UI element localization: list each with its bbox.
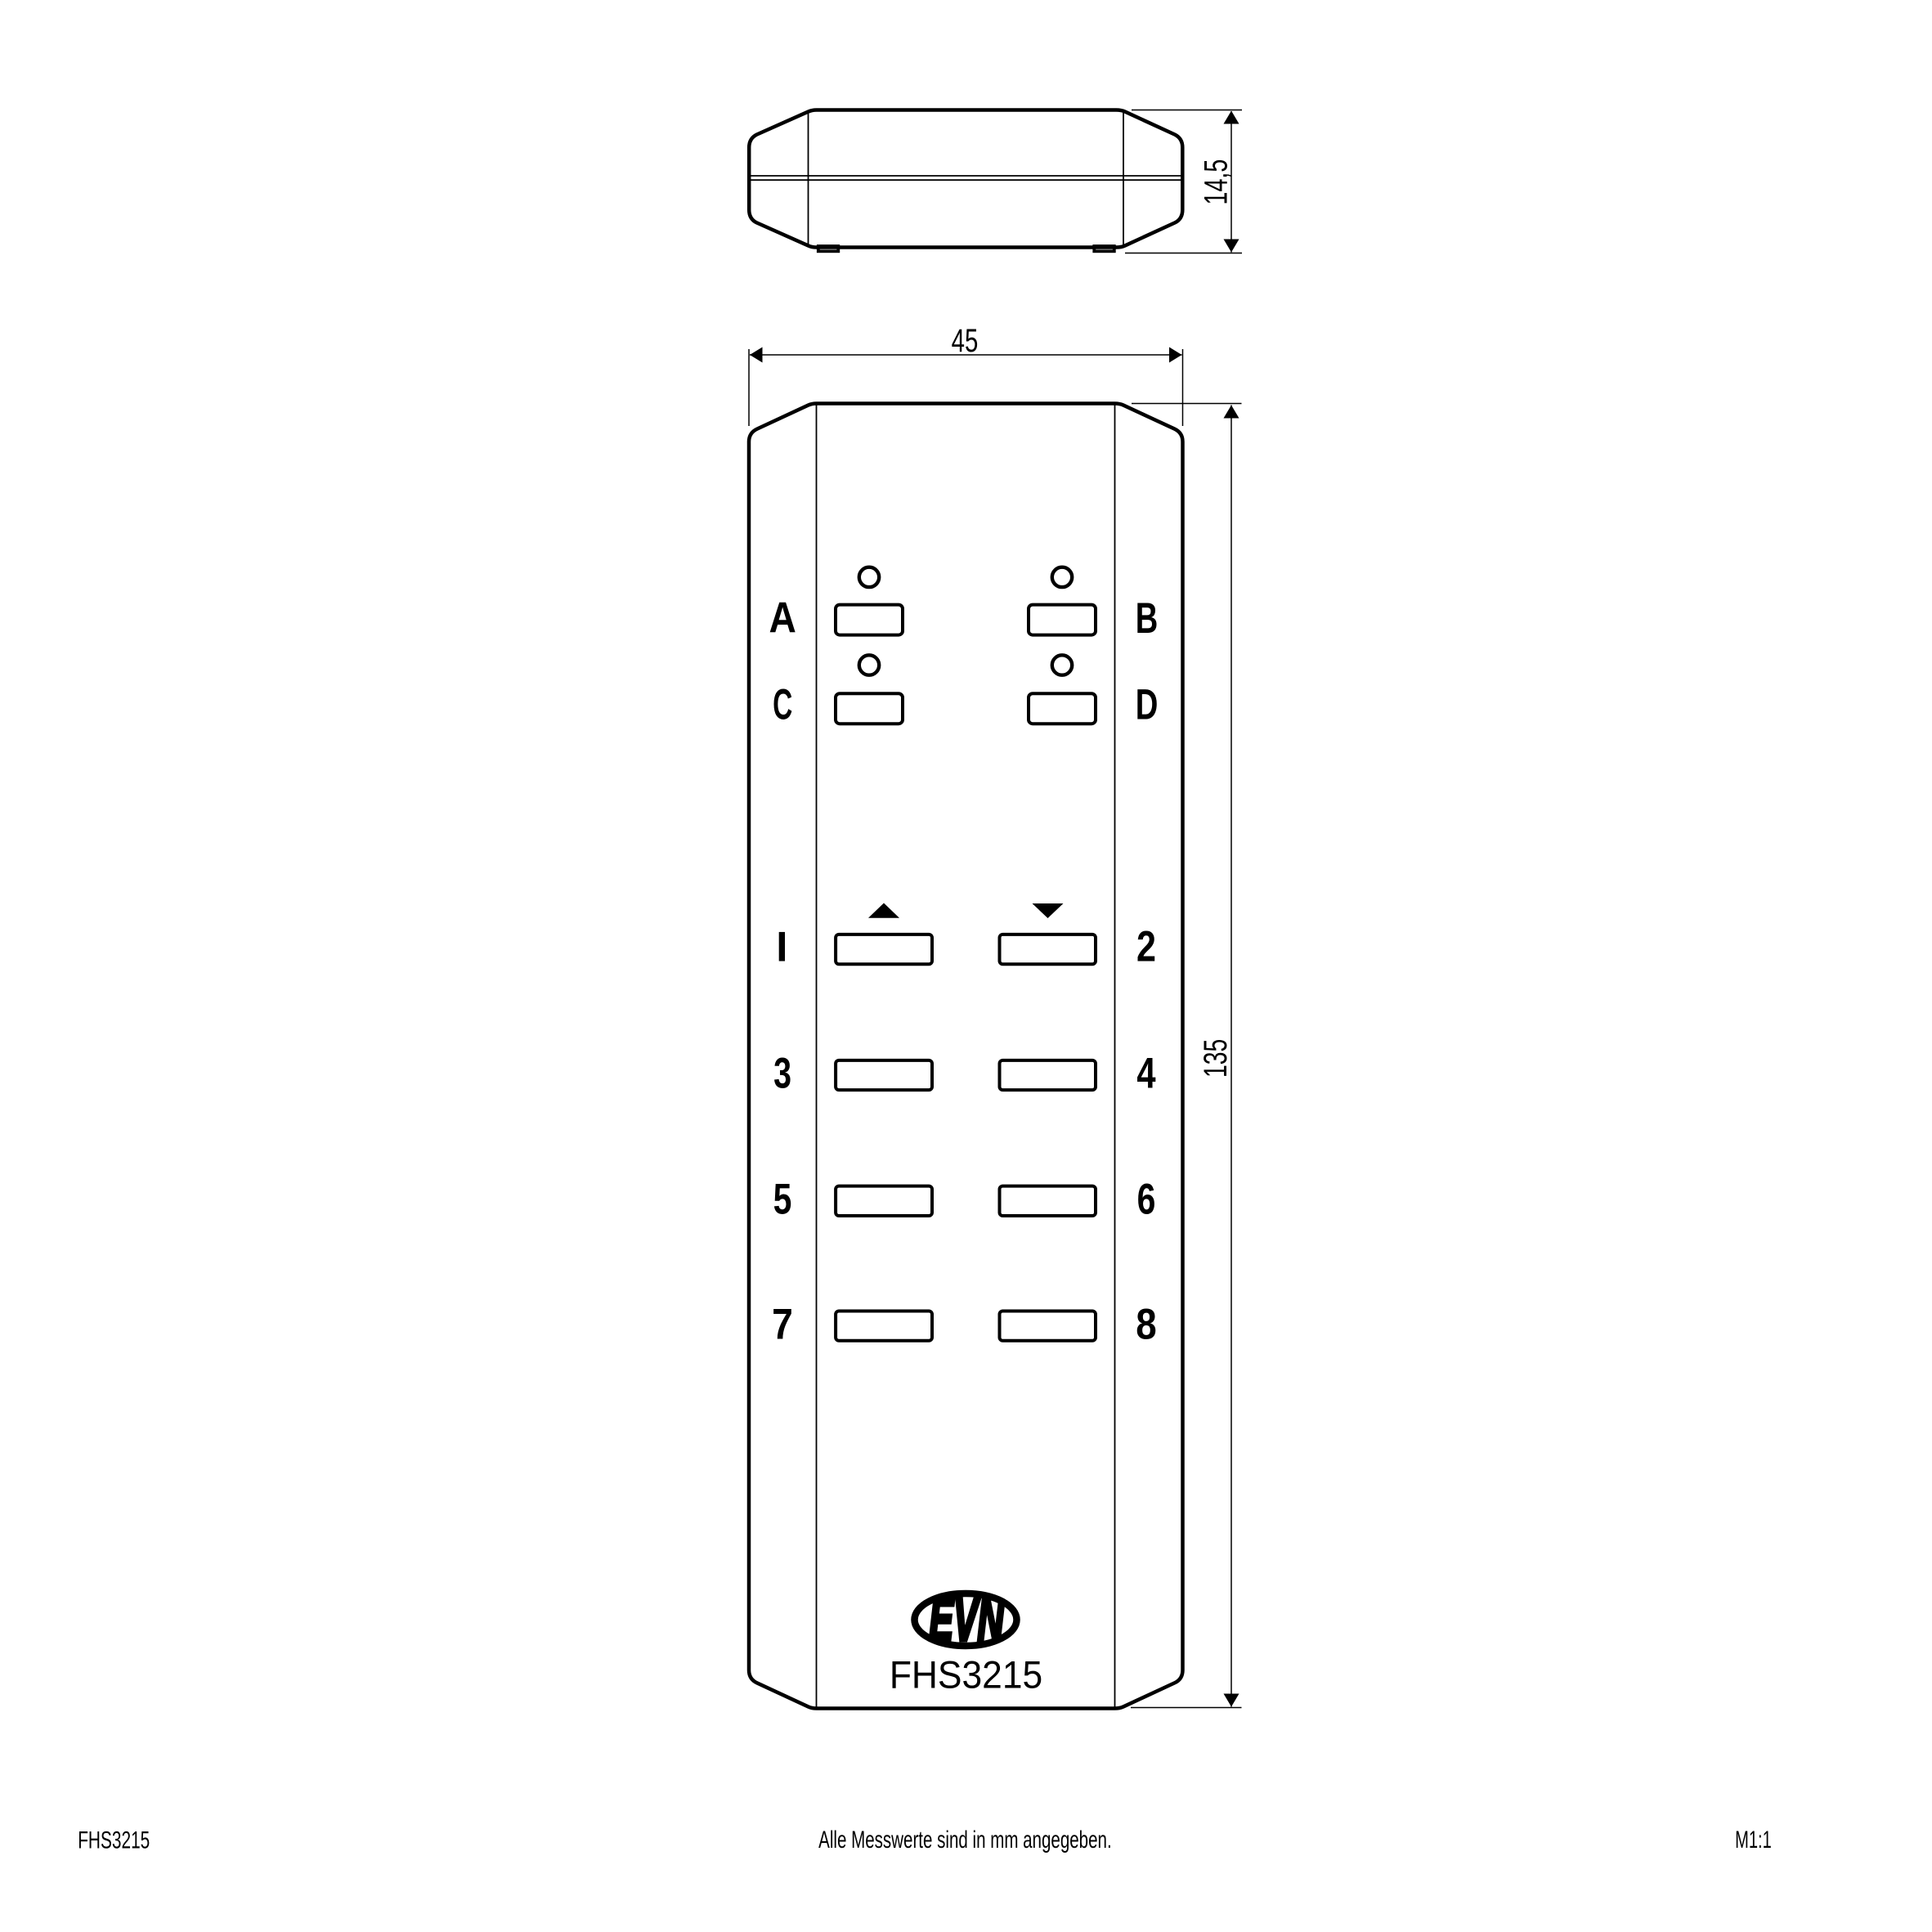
svg-text:6: 6 [1137,1174,1156,1222]
svg-text:EVN: EVN [929,1585,1005,1652]
svg-text:45: 45 [952,323,979,359]
svg-text:135: 135 [1198,1039,1234,1078]
svg-text:5: 5 [773,1174,792,1222]
svg-text:FHS3215: FHS3215 [78,1827,150,1854]
svg-text:14,5: 14,5 [1199,159,1235,205]
svg-text:3: 3 [773,1049,791,1097]
svg-text:M1:1: M1:1 [1735,1827,1772,1854]
svg-text:FHS3215: FHS3215 [890,1652,1042,1697]
svg-text:Alle Messwerte sind in mm ange: Alle Messwerte sind in mm angegeben. [818,1827,1112,1854]
svg-text:D: D [1136,679,1159,728]
svg-text:B: B [1136,594,1158,643]
svg-text:C: C [773,681,792,728]
svg-text:8: 8 [1136,1301,1156,1349]
svg-text:7: 7 [772,1301,793,1348]
svg-text:A: A [769,594,796,642]
svg-text:2: 2 [1136,923,1156,971]
svg-text:4: 4 [1136,1050,1156,1098]
